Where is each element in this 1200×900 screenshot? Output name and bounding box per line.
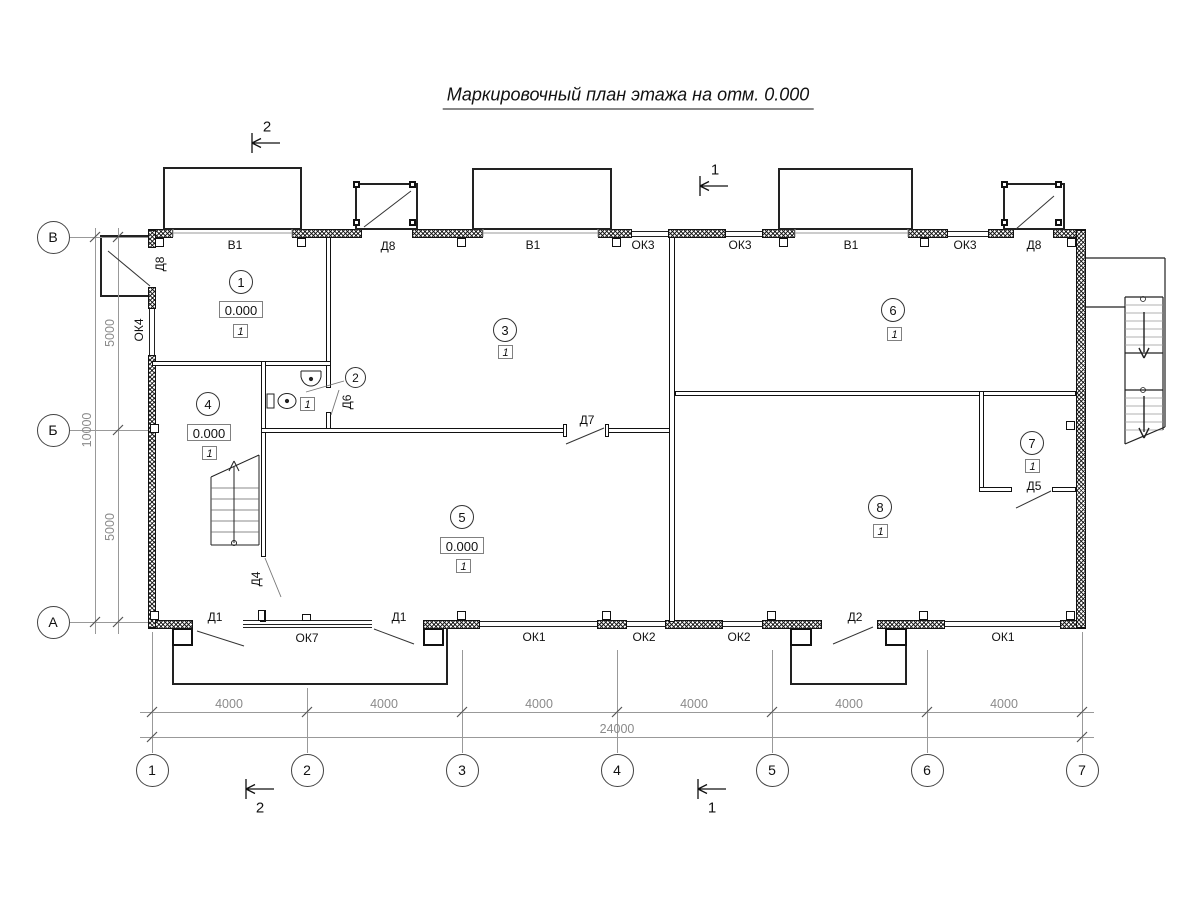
jamb xyxy=(767,611,776,620)
dim-label: 5000 xyxy=(103,319,117,347)
axis-line xyxy=(152,632,153,753)
type-mark: 1 xyxy=(300,397,315,411)
opening-label: Д1 xyxy=(392,610,407,624)
window-band xyxy=(149,309,155,355)
section-mark: 1 xyxy=(708,800,716,817)
porch-post xyxy=(172,628,193,646)
door-jamb xyxy=(563,424,567,437)
axis-line xyxy=(927,650,928,753)
dim-label: 24000 xyxy=(600,722,635,736)
porch-post xyxy=(409,219,416,226)
wall-pier xyxy=(597,620,627,629)
opening-label: Д8 xyxy=(153,257,167,272)
elevation-mark: 0.000 xyxy=(440,537,484,554)
dim-label: 5000 xyxy=(103,513,117,541)
jamb xyxy=(1066,421,1075,430)
wall-pier xyxy=(1076,230,1086,628)
dim-label: 4000 xyxy=(680,697,708,711)
exterior-stairs-icon xyxy=(1086,258,1165,444)
type-mark: 1 xyxy=(233,324,248,338)
axis-line xyxy=(70,622,148,623)
type-mark: 1 xyxy=(1025,459,1040,473)
opening-label: ОК1 xyxy=(523,630,546,644)
interior-wall xyxy=(605,428,674,433)
porch-post xyxy=(423,628,444,646)
porch-post xyxy=(885,628,907,646)
jamb xyxy=(1066,611,1075,620)
dim-label: 4000 xyxy=(525,697,553,711)
door-label: Д5 xyxy=(1027,479,1042,493)
jamb xyxy=(297,238,306,247)
interior-wall xyxy=(979,487,1012,492)
elevation-mark: 0.000 xyxy=(219,301,263,318)
dim-label: 4000 xyxy=(370,697,398,711)
opening-label: Д8 xyxy=(1027,238,1042,252)
room-number: 5 xyxy=(450,505,474,529)
opening-label: ОК7 xyxy=(296,631,319,645)
side-annex-outline xyxy=(100,235,148,297)
balcony-outline xyxy=(778,168,913,230)
axis-bubble-row: А xyxy=(37,606,70,639)
jamb xyxy=(302,614,311,621)
wall-pier xyxy=(668,229,726,238)
jamb xyxy=(612,238,621,247)
dim-label: 4000 xyxy=(215,697,243,711)
opening-label: ОК3 xyxy=(729,238,752,252)
jamb xyxy=(920,238,929,247)
room-number: 1 xyxy=(229,270,253,294)
interior-stairs-icon xyxy=(211,455,259,546)
door-label: Д4 xyxy=(249,572,263,587)
type-mark: 1 xyxy=(202,446,217,460)
wall-pier xyxy=(598,229,632,238)
interior-wall xyxy=(979,391,984,490)
interior-wall xyxy=(261,428,567,433)
door-jamb xyxy=(605,424,609,437)
axis-bubble-row: В xyxy=(37,221,70,254)
porch-post xyxy=(1001,219,1008,226)
page-title: Маркировочный план этажа на отм. 0.000 xyxy=(443,85,814,110)
opening-label: ОК3 xyxy=(954,238,977,252)
porch-post xyxy=(1055,181,1062,188)
axis-bubble-col: 4 xyxy=(601,754,634,787)
axis-line xyxy=(1082,632,1083,753)
room-number: 8 xyxy=(868,495,892,519)
axis-bubble-col: 1 xyxy=(136,754,169,787)
sink-icon xyxy=(301,371,321,386)
section-mark: 1 xyxy=(711,162,719,179)
door-label: Д6 xyxy=(340,395,354,410)
jamb xyxy=(150,611,159,620)
wall-pier xyxy=(412,229,483,238)
type-mark: 1 xyxy=(887,327,902,341)
section-mark: 2 xyxy=(256,800,264,817)
room-number: 7 xyxy=(1020,431,1044,455)
jamb xyxy=(155,238,164,247)
lintel-line xyxy=(173,229,908,237)
wall-pier xyxy=(762,229,795,238)
door-stub xyxy=(326,412,331,429)
interior-wall xyxy=(669,237,675,622)
type-mark: 1 xyxy=(456,559,471,573)
dim-label: 4000 xyxy=(835,697,863,711)
wall-pier xyxy=(908,229,948,238)
section-mark: 2 xyxy=(263,119,271,136)
type-mark: 1 xyxy=(873,524,888,538)
jamb xyxy=(602,611,611,620)
opening-label: ОК2 xyxy=(728,630,751,644)
window-band xyxy=(632,231,668,237)
axis-bubble-col: 2 xyxy=(291,754,324,787)
jamb xyxy=(150,424,159,433)
interior-wall xyxy=(1052,487,1076,492)
axis-line xyxy=(70,237,148,238)
dimension-line xyxy=(118,228,119,634)
axis-bubble-col: 7 xyxy=(1066,754,1099,787)
room-number: 2 xyxy=(345,367,366,388)
toilet-icon xyxy=(267,394,296,409)
dim-label: 10000 xyxy=(80,413,94,448)
porch-post xyxy=(409,181,416,188)
floor-plan-sheet: Маркировочный план этажа на отм. 0.000 xyxy=(0,0,1200,900)
door-label: Д7 xyxy=(580,413,595,427)
axis-bubble-col: 5 xyxy=(756,754,789,787)
wall-pier xyxy=(988,229,1014,238)
axis-bubble-col: 3 xyxy=(446,754,479,787)
opening-label: ОК4 xyxy=(132,319,146,342)
porch-post xyxy=(353,181,360,188)
dim-label: 4000 xyxy=(990,697,1018,711)
balcony-outline xyxy=(163,167,302,230)
axis-bubble-col: 6 xyxy=(911,754,944,787)
axis-line xyxy=(462,650,463,753)
interior-wall xyxy=(675,391,1076,396)
jamb xyxy=(919,611,928,620)
jamb xyxy=(258,610,265,621)
jamb xyxy=(1067,238,1076,247)
balcony-outline xyxy=(472,168,612,230)
jamb xyxy=(457,238,466,247)
axis-line xyxy=(617,650,618,753)
opening-label: В1 xyxy=(228,238,243,252)
window-band xyxy=(726,231,762,237)
type-mark: 1 xyxy=(498,345,513,359)
wall-pier xyxy=(148,355,156,628)
wall-pier xyxy=(148,287,156,309)
porch-post xyxy=(1055,219,1062,226)
axis-line xyxy=(307,688,308,753)
jamb xyxy=(457,611,466,620)
window-band xyxy=(480,621,597,627)
axis-bubble-row: Б xyxy=(37,414,70,447)
interior-wall xyxy=(261,361,266,557)
room-number: 4 xyxy=(196,392,220,416)
interior-wall xyxy=(152,361,331,366)
window-band xyxy=(627,621,665,627)
opening-label: ОК2 xyxy=(633,630,656,644)
window-band xyxy=(945,621,1060,627)
porch-post xyxy=(790,628,812,646)
porch-post xyxy=(1001,181,1008,188)
opening-label: ОК3 xyxy=(632,238,655,252)
jamb xyxy=(779,238,788,247)
opening-label: В1 xyxy=(844,238,859,252)
axis-line xyxy=(772,650,773,753)
opening-label: В1 xyxy=(526,238,541,252)
opening-label: Д1 xyxy=(208,610,223,624)
porch-post xyxy=(353,219,360,226)
leader-line xyxy=(265,381,344,597)
opening-label: Д8 xyxy=(381,239,396,253)
room-number: 6 xyxy=(881,298,905,322)
window-band xyxy=(723,621,762,627)
room-number: 3 xyxy=(493,318,517,342)
elevation-mark: 0.000 xyxy=(187,424,231,441)
opening-label: Д2 xyxy=(848,610,863,624)
opening-label: ОК1 xyxy=(992,630,1015,644)
window-band xyxy=(948,231,988,237)
dimension-line xyxy=(95,228,96,634)
